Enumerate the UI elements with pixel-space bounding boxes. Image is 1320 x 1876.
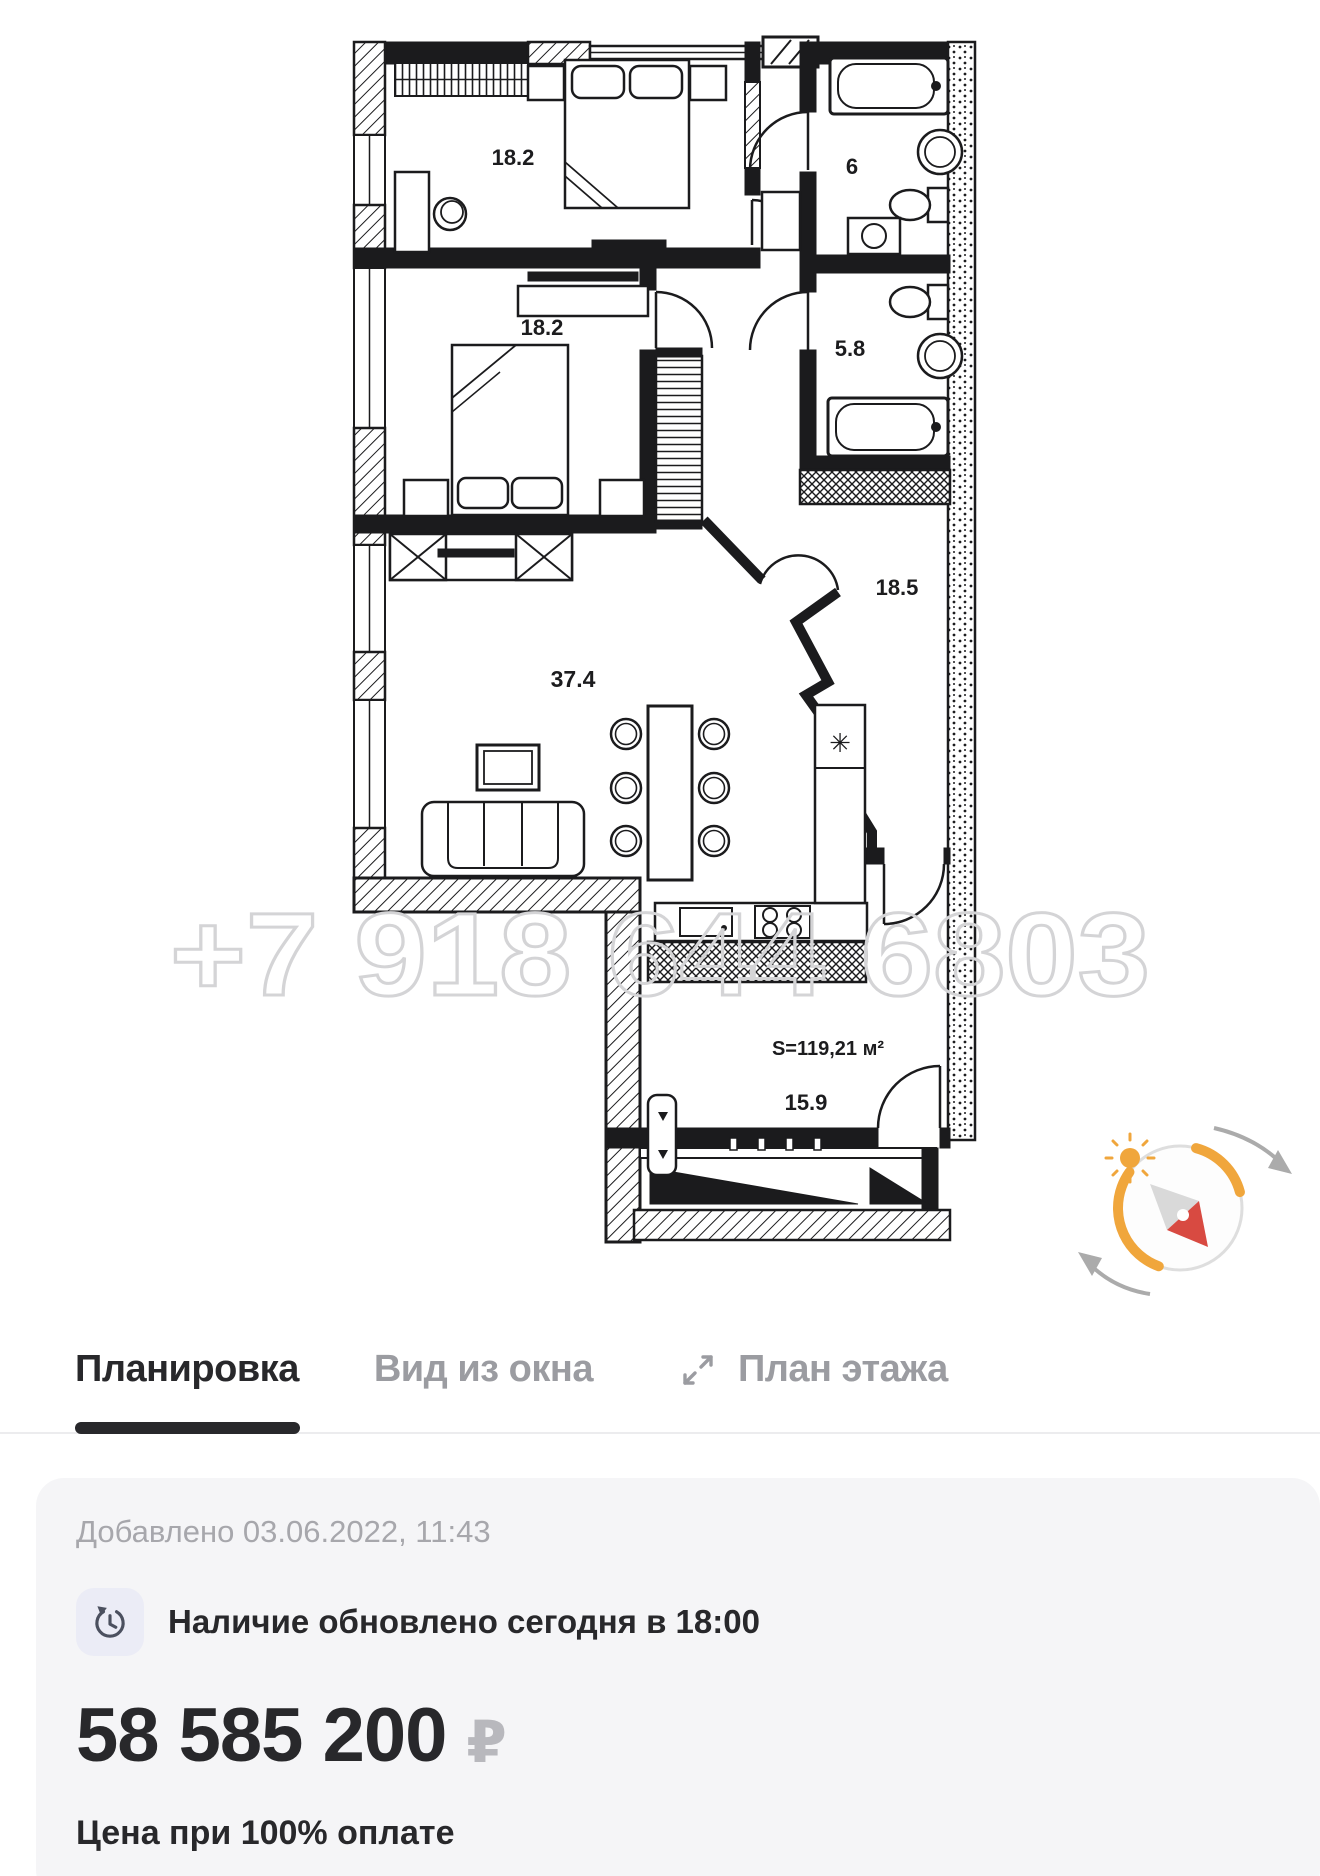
desk: [395, 172, 429, 252]
radiator: [648, 1095, 676, 1175]
room-area-bathroom-1: 6: [846, 154, 858, 179]
room-area-bedroom-2: 18.2: [521, 315, 564, 340]
floor-plan-image: ✳ 18.2 18.2 6 5.8 18.5 37.4 S=119,21 м² …: [0, 0, 1320, 1330]
tab-floor-plan-label: План этажа: [738, 1348, 948, 1391]
price-row: 58 585 200 ₽: [76, 1698, 1320, 1774]
price-value: 58 585 200: [76, 1698, 446, 1774]
nightstand: [690, 66, 726, 100]
ruble-sign: ₽: [466, 1713, 506, 1774]
dresser: [518, 286, 648, 316]
room-area-living: 37.4: [551, 666, 596, 692]
availability-row: Наличие обновлено сегодня в 18:00: [76, 1588, 1320, 1656]
tab-floor-plan[interactable]: План этажа: [678, 1348, 948, 1391]
tv: [528, 272, 638, 281]
clock-refresh-icon: [76, 1588, 144, 1656]
sofa: [422, 802, 584, 876]
expand-icon: [678, 1350, 718, 1390]
tab-bar: Планировка Вид из окна План этажа: [0, 1348, 1320, 1444]
dining-table: [648, 706, 692, 880]
total-area-label: S=119,21 м²: [772, 1038, 884, 1060]
tv: [592, 240, 666, 249]
left-wall-windows: [354, 42, 385, 892]
nightstand: [528, 66, 564, 100]
tv: [438, 549, 514, 557]
compass-icon: [1078, 1128, 1292, 1294]
added-date: Добавлено 03.06.2022, 11:43: [76, 1514, 1320, 1550]
active-tab-indicator: [75, 1422, 300, 1434]
room-area-bedroom-1: 18.2: [492, 145, 535, 170]
nightstand: [600, 480, 644, 516]
sun-icon: [1106, 1134, 1154, 1182]
room-area-hallway: 18.5: [876, 575, 919, 600]
nightstand: [404, 480, 448, 516]
price-note: Цена при 100% оплате: [76, 1814, 1320, 1853]
tab-window-view[interactable]: Вид из окна: [374, 1348, 593, 1391]
room-area-bathroom-2: 5.8: [835, 336, 866, 361]
tab-layout[interactable]: Планировка: [75, 1348, 299, 1391]
listing-info-card: Добавлено 03.06.2022, 11:43 Наличие обно…: [36, 1478, 1320, 1876]
availability-text: Наличие обновлено сегодня в 18:00: [168, 1603, 760, 1641]
watermark: +7 918 644 6803: [170, 889, 1150, 1021]
living-furniture: [390, 534, 729, 880]
wardrobe-hallway: [656, 356, 702, 522]
fridge-icon: ✳: [829, 728, 851, 758]
cabinet: [762, 192, 800, 250]
bathroom-2-fixtures: [828, 285, 962, 456]
room-area-kitchen-room: 15.9: [785, 1090, 828, 1115]
balcony: [634, 1138, 950, 1240]
